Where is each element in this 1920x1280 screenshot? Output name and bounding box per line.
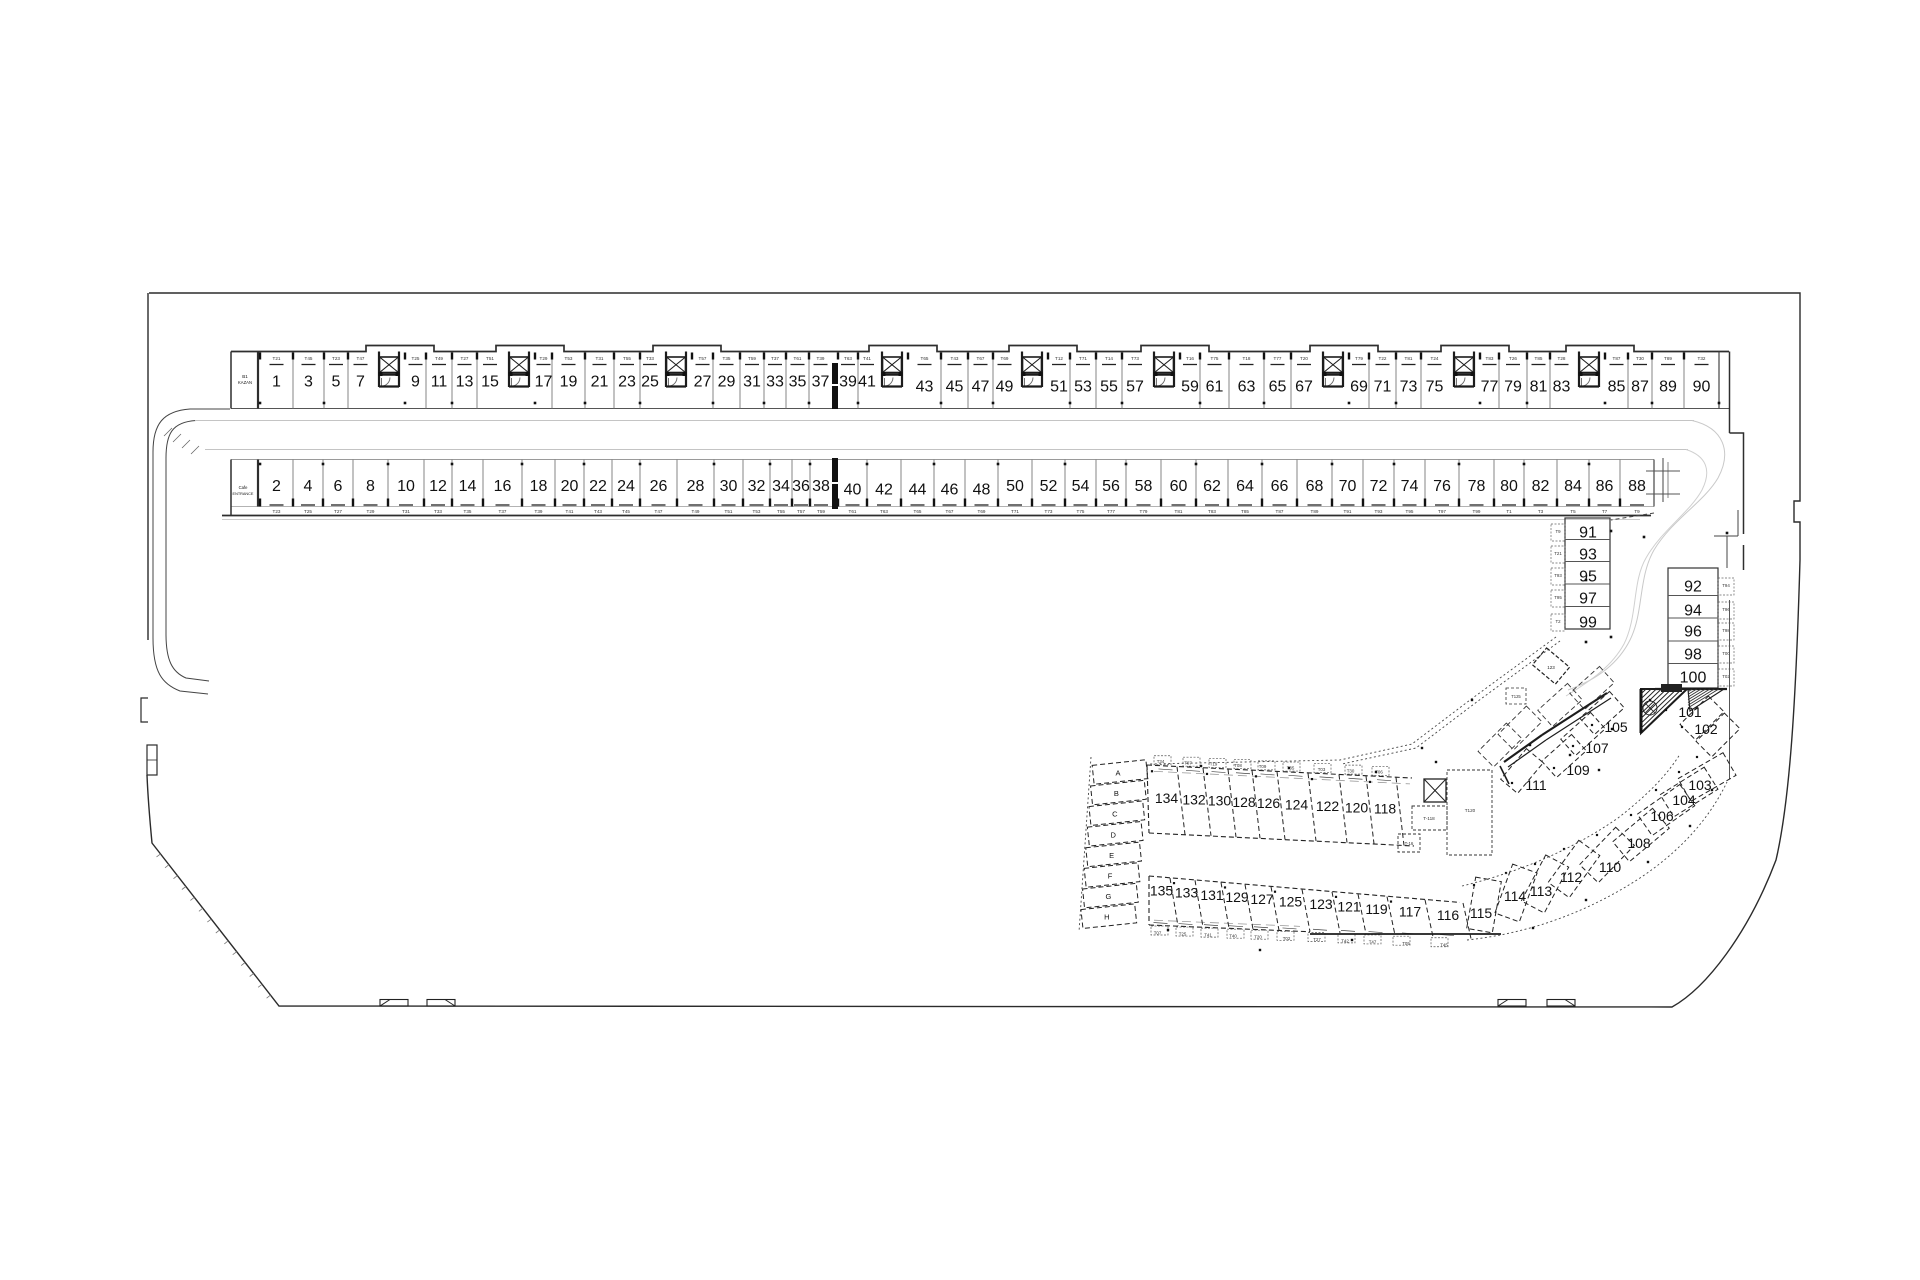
svg-text:64: 64 (1236, 478, 1254, 495)
svg-text:47: 47 (972, 379, 990, 396)
svg-text:81: 81 (1530, 379, 1548, 396)
svg-text:39: 39 (839, 374, 857, 391)
svg-text:T47: T47 (655, 509, 663, 514)
svg-text:T27: T27 (334, 509, 342, 514)
svg-text:2: 2 (272, 478, 281, 495)
svg-text:T30: T30 (1636, 356, 1644, 361)
svg-text:30: 30 (720, 478, 738, 495)
svg-text:45: 45 (946, 379, 964, 396)
svg-text:T29: T29 (367, 509, 375, 514)
svg-text:T87: T87 (1613, 356, 1621, 361)
svg-text:84: 84 (1564, 478, 1582, 495)
svg-text:T07: T07 (1184, 760, 1192, 765)
svg-text:53: 53 (1074, 379, 1092, 396)
svg-text:61: 61 (1206, 379, 1224, 396)
svg-text:T41: T41 (566, 509, 574, 514)
svg-text:T85: T85 (1241, 509, 1249, 514)
svg-text:88: 88 (1628, 478, 1646, 495)
svg-text:T19: T19 (1210, 762, 1218, 767)
svg-text:T89: T89 (1664, 356, 1672, 361)
svg-text:T21: T21 (273, 356, 281, 361)
svg-text:H: H (1104, 913, 1109, 922)
svg-text:51: 51 (1050, 379, 1068, 396)
svg-text:102: 102 (1694, 721, 1718, 737)
svg-text:95: 95 (1579, 569, 1597, 586)
svg-text:T61: T61 (849, 509, 857, 514)
svg-text:92: 92 (1684, 579, 1702, 596)
svg-text:9: 9 (411, 374, 420, 391)
svg-text:73: 73 (1400, 379, 1418, 396)
svg-text:14: 14 (459, 478, 477, 495)
svg-text:55: 55 (1100, 379, 1118, 396)
svg-text:106: 106 (1650, 808, 1674, 824)
svg-text:T77: T77 (1274, 356, 1282, 361)
svg-text:T9: T9 (1634, 509, 1640, 514)
svg-text:T67: T67 (946, 509, 954, 514)
svg-text:112: 112 (1560, 869, 1583, 885)
svg-text:52: 52 (1040, 478, 1058, 495)
svg-text:T33: T33 (434, 509, 442, 514)
svg-text:T16: T16 (1186, 356, 1194, 361)
svg-text:Cafe: Cafe (239, 485, 249, 490)
svg-text:T95: T95 (1554, 595, 1562, 600)
svg-text:130: 130 (1208, 793, 1232, 809)
svg-text:T94: T94 (1722, 583, 1730, 588)
svg-text:T43: T43 (594, 509, 602, 514)
svg-text:T33: T33 (646, 356, 654, 361)
svg-text:119: 119 (1365, 901, 1388, 917)
svg-text:128: 128 (1232, 794, 1256, 810)
svg-text:T24: T24 (1431, 356, 1439, 361)
svg-text:T25: T25 (412, 356, 420, 361)
svg-text:4: 4 (304, 478, 313, 495)
svg-text:T73: T73 (1045, 509, 1053, 514)
svg-text:63: 63 (1238, 379, 1256, 396)
svg-text:18: 18 (530, 478, 548, 495)
svg-text:A: A (1115, 769, 1120, 778)
svg-text:126: 126 (1257, 795, 1281, 811)
svg-text:19: 19 (560, 374, 578, 391)
svg-text:25: 25 (641, 374, 659, 391)
svg-text:15: 15 (481, 374, 499, 391)
svg-text:124: 124 (1285, 796, 1309, 812)
svg-text:T27: T27 (461, 356, 469, 361)
svg-text:100: 100 (1680, 670, 1707, 687)
svg-text:60: 60 (1170, 478, 1188, 495)
svg-text:T125: T125 (1511, 694, 1521, 699)
svg-text:T67: T67 (977, 356, 985, 361)
svg-text:T23: T23 (273, 509, 281, 514)
svg-text:T-16: T-16 (1405, 841, 1414, 846)
svg-text:T2: T2 (1555, 619, 1561, 624)
svg-text:T93: T93 (1375, 509, 1383, 514)
svg-text:T37: T37 (499, 509, 507, 514)
svg-text:T93: T93 (1554, 573, 1562, 578)
svg-text:T12: T12 (1055, 356, 1063, 361)
svg-text:108: 108 (1627, 835, 1651, 851)
svg-text:T75: T75 (1077, 509, 1085, 514)
svg-text:ENTRANCE: ENTRANCE (233, 492, 254, 496)
svg-text:T87: T87 (1276, 509, 1284, 514)
svg-text:D: D (1110, 830, 1116, 839)
svg-text:T97: T97 (1438, 509, 1446, 514)
svg-text:82: 82 (1532, 478, 1550, 495)
svg-text:G: G (1105, 892, 1111, 901)
svg-text:29: 29 (718, 374, 736, 391)
svg-text:93: 93 (1579, 547, 1597, 564)
svg-text:T75: T75 (1211, 356, 1219, 361)
svg-text:114: 114 (1504, 888, 1527, 904)
svg-text:6: 6 (334, 478, 343, 495)
svg-text:5: 5 (332, 374, 341, 391)
svg-text:T51: T51 (486, 356, 494, 361)
svg-text:57: 57 (1126, 379, 1144, 396)
svg-text:23: 23 (618, 374, 636, 391)
svg-text:T73: T73 (1131, 356, 1139, 361)
svg-text:120: 120 (1345, 799, 1369, 815)
svg-text:77: 77 (1481, 379, 1499, 396)
svg-text:T35: T35 (723, 356, 731, 361)
svg-text:65: 65 (1269, 379, 1287, 396)
svg-text:22: 22 (589, 478, 607, 495)
svg-text:43: 43 (916, 379, 934, 396)
svg-text:32: 32 (748, 478, 766, 495)
svg-text:116: 116 (1437, 907, 1460, 923)
svg-text:T79: T79 (1355, 356, 1363, 361)
svg-text:129: 129 (1225, 889, 1249, 905)
svg-text:T21: T21 (1554, 551, 1562, 556)
svg-text:T69: T69 (1001, 356, 1009, 361)
svg-text:125: 125 (1279, 894, 1303, 910)
svg-text:97: 97 (1579, 591, 1597, 608)
svg-text:T41: T41 (863, 356, 871, 361)
svg-text:75: 75 (1426, 379, 1444, 396)
svg-text:T77: T77 (1107, 509, 1115, 514)
svg-text:38: 38 (812, 478, 830, 495)
svg-text:T79: T79 (1140, 509, 1148, 514)
svg-text:T22: T22 (1379, 356, 1387, 361)
svg-text:1: 1 (272, 374, 281, 391)
svg-text:66: 66 (1271, 478, 1289, 495)
svg-text:C: C (1112, 810, 1118, 819)
svg-text:110: 110 (1599, 859, 1622, 875)
svg-text:T14: T14 (1105, 356, 1113, 361)
svg-text:98: 98 (1684, 647, 1702, 664)
svg-text:113: 113 (1530, 883, 1553, 899)
svg-text:37: 37 (812, 374, 830, 391)
svg-text:T71: T71 (1079, 356, 1087, 361)
svg-text:T32: T32 (1698, 356, 1706, 361)
svg-text:68: 68 (1306, 478, 1324, 495)
svg-text:T25: T25 (304, 509, 312, 514)
svg-text:T47: T47 (1369, 940, 1377, 945)
svg-text:99: 99 (1579, 615, 1597, 632)
svg-text:24: 24 (617, 478, 635, 495)
svg-text:T03: T03 (1318, 767, 1326, 772)
svg-text:T120: T120 (1465, 808, 1476, 813)
svg-text:T7: T7 (1602, 509, 1608, 514)
svg-text:71: 71 (1374, 379, 1392, 396)
svg-text:41: 41 (858, 374, 876, 391)
svg-text:96: 96 (1684, 624, 1702, 641)
svg-text:T83: T83 (1486, 356, 1494, 361)
svg-text:111: 111 (1525, 777, 1546, 793)
svg-text:T65: T65 (921, 356, 929, 361)
svg-text:T45: T45 (305, 356, 313, 361)
svg-text:T08: T08 (1234, 763, 1242, 768)
svg-text:T55: T55 (623, 356, 631, 361)
svg-text:12: 12 (429, 478, 447, 495)
svg-text:46: 46 (941, 482, 959, 499)
svg-text:56: 56 (1102, 478, 1120, 495)
svg-text:T45: T45 (622, 509, 630, 514)
svg-text:B1: B1 (242, 374, 248, 379)
svg-text:T39: T39 (535, 509, 543, 514)
svg-text:T23: T23 (332, 356, 340, 361)
svg-text:85: 85 (1608, 379, 1626, 396)
svg-text:T09: T09 (1259, 764, 1267, 769)
svg-text:27: 27 (694, 374, 712, 391)
svg-text:86: 86 (1596, 478, 1614, 495)
svg-text:133: 133 (1175, 885, 1199, 901)
svg-text:70: 70 (1339, 478, 1357, 495)
svg-text:T39: T39 (817, 356, 825, 361)
svg-text:T37: T37 (771, 356, 779, 361)
svg-text:72: 72 (1370, 478, 1388, 495)
svg-text:33: 33 (766, 374, 784, 391)
svg-text:T61: T61 (794, 356, 802, 361)
svg-text:T83: T83 (1208, 509, 1216, 514)
svg-text:135: 135 (1150, 883, 1174, 899)
svg-text:F: F (1108, 872, 1113, 881)
svg-text:T81: T81 (1405, 356, 1413, 361)
svg-text:T49: T49 (435, 356, 443, 361)
svg-text:T91: T91 (1344, 509, 1352, 514)
svg-text:17: 17 (535, 374, 553, 391)
svg-text:11: 11 (431, 374, 448, 391)
svg-text:B: B (1114, 789, 1119, 798)
svg-text:T69: T69 (978, 509, 986, 514)
svg-text:T20: T20 (1300, 356, 1308, 361)
svg-text:87: 87 (1631, 379, 1649, 396)
svg-text:101: 101 (1678, 704, 1702, 720)
svg-text:7: 7 (356, 374, 365, 391)
svg-text:T47: T47 (357, 356, 365, 361)
svg-text:T51: T51 (725, 509, 733, 514)
svg-text:48: 48 (973, 482, 991, 499)
svg-text:T65: T65 (914, 509, 922, 514)
svg-text:T57: T57 (797, 509, 805, 514)
svg-text:20: 20 (561, 478, 579, 495)
svg-text:T1: T1 (1506, 509, 1512, 514)
svg-text:42: 42 (875, 482, 893, 499)
svg-text:T30: T30 (1347, 768, 1355, 773)
svg-text:62: 62 (1203, 478, 1221, 495)
svg-text:36: 36 (792, 478, 810, 495)
svg-text:10: 10 (397, 478, 415, 495)
svg-text:T53: T53 (753, 509, 761, 514)
svg-text:80: 80 (1500, 478, 1518, 495)
svg-text:T-118: T-118 (1423, 816, 1435, 821)
svg-text:E: E (1109, 851, 1114, 860)
svg-text:T53: T53 (565, 356, 573, 361)
svg-text:59: 59 (1181, 379, 1199, 396)
svg-text:76: 76 (1433, 478, 1451, 495)
svg-text:103: 103 (1688, 777, 1712, 793)
svg-text:40: 40 (844, 482, 862, 499)
svg-text:127: 127 (1250, 891, 1274, 907)
svg-text:78: 78 (1468, 478, 1486, 495)
svg-text:132: 132 (1182, 791, 1206, 807)
svg-text:KAZAN: KAZAN (238, 380, 252, 385)
svg-text:35: 35 (789, 374, 807, 391)
svg-text:69: 69 (1350, 379, 1368, 396)
svg-text:118: 118 (1374, 801, 1397, 817)
svg-text:115: 115 (1470, 905, 1493, 921)
svg-text:21: 21 (591, 374, 609, 391)
svg-text:67: 67 (1295, 379, 1313, 396)
svg-text:T31: T31 (596, 356, 604, 361)
svg-text:94: 94 (1684, 603, 1702, 620)
svg-text:26: 26 (650, 478, 668, 495)
svg-text:131: 131 (1200, 887, 1224, 903)
svg-text:T5: T5 (1570, 509, 1576, 514)
svg-text:122: 122 (1316, 798, 1340, 814)
svg-text:T28: T28 (1558, 356, 1566, 361)
svg-text:T3: T3 (1538, 509, 1544, 514)
svg-text:117: 117 (1399, 904, 1422, 920)
svg-text:123: 123 (1547, 665, 1555, 670)
svg-text:54: 54 (1072, 478, 1090, 495)
svg-text:T95: T95 (1406, 509, 1414, 514)
svg-text:T99: T99 (1473, 509, 1481, 514)
svg-text:T89: T89 (1311, 509, 1319, 514)
svg-text:28: 28 (687, 478, 705, 495)
svg-text:16: 16 (494, 478, 512, 495)
svg-text:134: 134 (1155, 790, 1179, 806)
svg-text:44: 44 (909, 482, 927, 499)
svg-text:83: 83 (1553, 379, 1571, 396)
svg-text:T59: T59 (748, 356, 756, 361)
svg-text:109: 109 (1566, 762, 1590, 778)
svg-text:T85: T85 (1535, 356, 1543, 361)
svg-text:T29: T29 (540, 356, 548, 361)
svg-text:34: 34 (772, 478, 790, 495)
svg-text:T35: T35 (464, 509, 472, 514)
svg-text:T9: T9 (1555, 529, 1561, 534)
svg-text:T31: T31 (402, 509, 410, 514)
svg-text:105: 105 (1604, 719, 1628, 735)
svg-text:123: 123 (1309, 896, 1333, 912)
svg-text:50: 50 (1006, 478, 1024, 495)
svg-text:T63: T63 (880, 509, 888, 514)
svg-text:T59: T59 (817, 509, 825, 514)
svg-text:31: 31 (743, 374, 761, 391)
svg-text:T63: T63 (844, 356, 852, 361)
svg-text:T26: T26 (1509, 356, 1517, 361)
svg-text:T49: T49 (692, 509, 700, 514)
svg-text:49: 49 (996, 379, 1014, 396)
svg-text:T43: T43 (951, 356, 959, 361)
svg-text:89: 89 (1659, 379, 1677, 396)
svg-text:3: 3 (304, 374, 313, 391)
svg-text:13: 13 (456, 374, 474, 391)
svg-text:8: 8 (366, 478, 375, 495)
svg-text:107: 107 (1585, 740, 1609, 756)
svg-text:121: 121 (1337, 899, 1361, 915)
svg-text:58: 58 (1135, 478, 1153, 495)
svg-text:74: 74 (1401, 478, 1419, 495)
svg-text:T34: T34 (1157, 759, 1165, 764)
svg-text:90: 90 (1693, 379, 1711, 396)
svg-text:T71: T71 (1011, 509, 1019, 514)
svg-text:T18: T18 (1243, 356, 1251, 361)
svg-text:T57: T57 (699, 356, 707, 361)
svg-text:79: 79 (1504, 379, 1522, 396)
svg-text:T81: T81 (1175, 509, 1183, 514)
svg-text:T55: T55 (777, 509, 785, 514)
svg-text:91: 91 (1579, 525, 1597, 542)
